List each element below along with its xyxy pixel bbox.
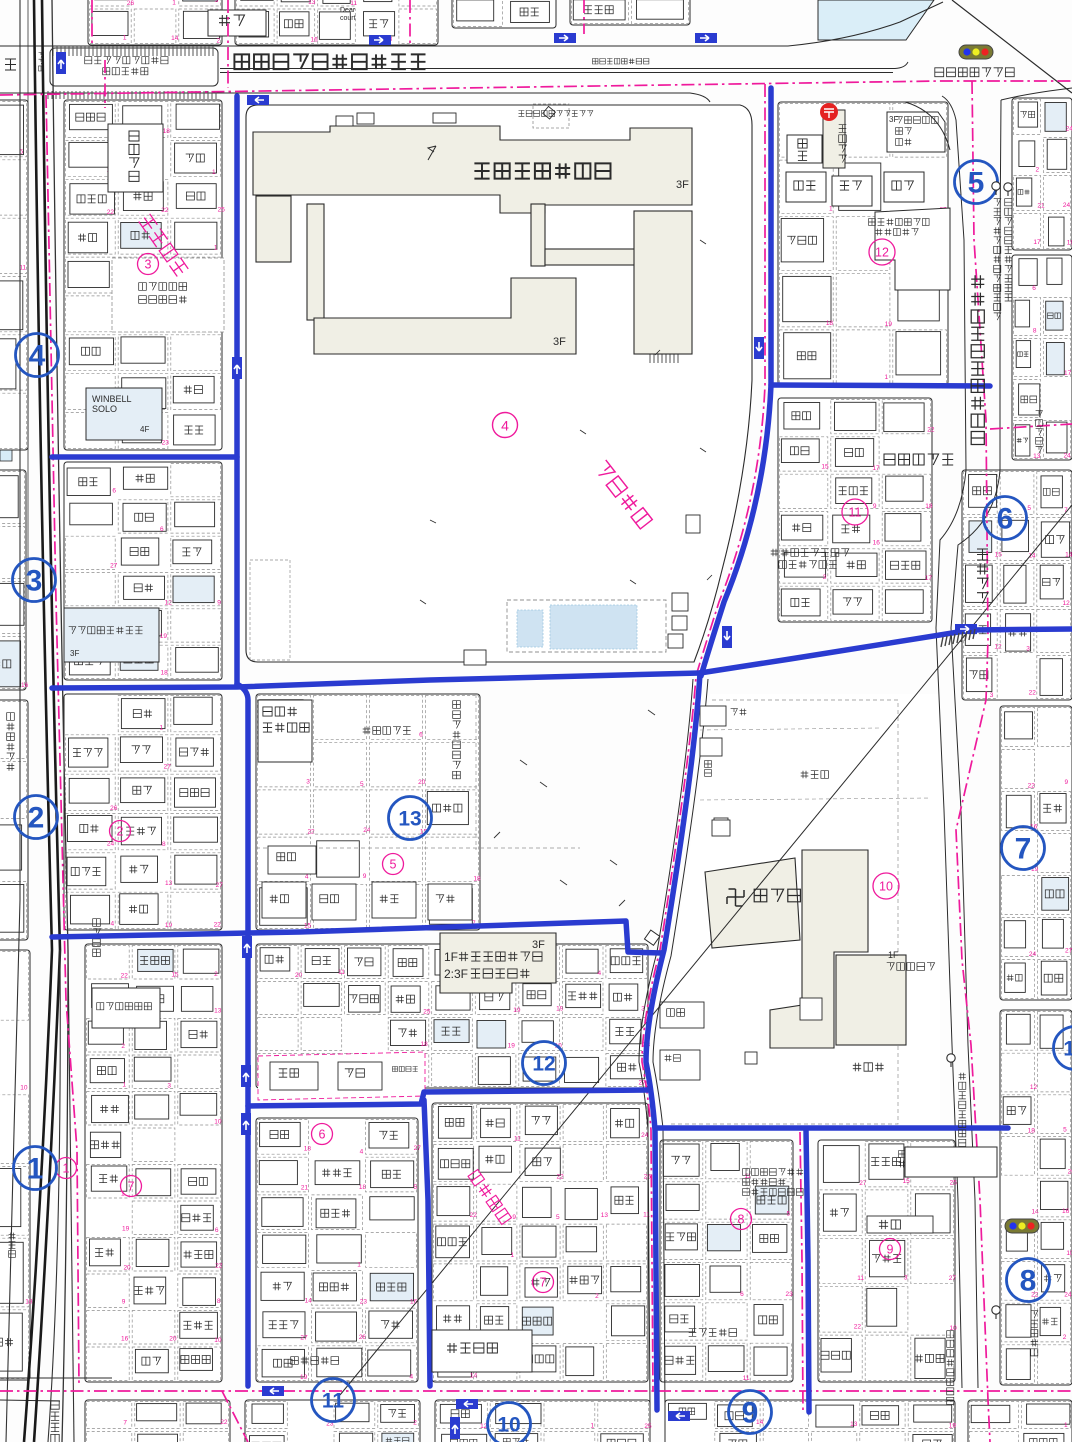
svg-text:19: 19 [160, 633, 168, 640]
svg-text:22: 22 [307, 829, 315, 836]
svg-text:3: 3 [990, 692, 994, 699]
svg-text:9: 9 [122, 1299, 126, 1306]
svg-text:3F: 3F [70, 649, 79, 658]
svg-text:2: 2 [1036, 166, 1040, 173]
svg-text:19: 19 [1067, 240, 1072, 247]
svg-text:13: 13 [850, 1421, 858, 1428]
svg-text:22: 22 [161, 207, 169, 214]
svg-text:2:3F: 2:3F [444, 967, 468, 981]
svg-text:13: 13 [1033, 453, 1041, 460]
svg-text:11: 11 [350, 0, 357, 7]
svg-text:6: 6 [319, 1128, 326, 1142]
svg-text:3: 3 [215, 0, 219, 4]
svg-text:26: 26 [1068, 1169, 1072, 1176]
svg-text:court: court [340, 15, 356, 22]
svg-text:22: 22 [927, 427, 935, 434]
svg-text:19: 19 [165, 922, 173, 929]
svg-text:7: 7 [128, 1180, 135, 1194]
svg-text:22: 22 [1028, 783, 1036, 790]
svg-text:18: 18 [473, 875, 481, 882]
svg-text:17: 17 [872, 465, 880, 472]
svg-text:23: 23 [162, 440, 170, 447]
svg-text:2: 2 [595, 1293, 599, 1300]
svg-text:12: 12 [532, 1053, 555, 1076]
svg-text:12: 12 [1063, 600, 1071, 607]
svg-text:1: 1 [172, 0, 176, 7]
svg-text:27: 27 [300, 1335, 308, 1342]
svg-text:15: 15 [903, 1178, 911, 1185]
svg-text:27: 27 [110, 562, 118, 569]
svg-text:2: 2 [117, 825, 124, 839]
svg-text:2: 2 [217, 38, 221, 45]
svg-text:27: 27 [216, 882, 224, 889]
svg-text:2: 2 [121, 1043, 125, 1050]
svg-text:24: 24 [1066, 125, 1072, 132]
svg-text:1: 1 [510, 1252, 514, 1259]
svg-text:3: 3 [1026, 645, 1030, 652]
svg-text:1: 1 [212, 169, 216, 176]
svg-text:7: 7 [123, 1420, 127, 1427]
svg-text:24: 24 [1064, 1291, 1072, 1298]
svg-text:24: 24 [1063, 202, 1071, 209]
svg-text:1: 1 [159, 724, 163, 731]
svg-text:WINBELL: WINBELL [92, 394, 132, 404]
svg-text:13: 13 [601, 1212, 609, 1219]
svg-text:10: 10 [497, 1414, 520, 1437]
svg-text:22: 22 [214, 921, 222, 928]
svg-text:25: 25 [644, 1423, 652, 1430]
svg-text:9: 9 [363, 873, 367, 880]
svg-text:16: 16 [21, 682, 29, 689]
svg-text:25: 25 [423, 1009, 431, 1016]
svg-text:10: 10 [214, 1337, 222, 1344]
svg-text:9: 9 [1064, 779, 1068, 786]
svg-text:14: 14 [171, 35, 179, 42]
svg-text:14: 14 [1065, 551, 1072, 558]
svg-text:23: 23 [360, 1298, 368, 1305]
svg-text:6: 6 [215, 1227, 219, 1234]
svg-text:2: 2 [28, 802, 45, 835]
svg-text:13: 13 [308, 0, 316, 6]
svg-text:20: 20 [123, 1265, 131, 1272]
svg-text:9: 9 [742, 1397, 759, 1430]
svg-text:1: 1 [122, 1081, 126, 1088]
svg-text:1: 1 [357, 1262, 361, 1269]
svg-text:9: 9 [217, 599, 221, 606]
svg-text:3F: 3F [553, 336, 566, 348]
svg-text:21: 21 [301, 1185, 309, 1192]
svg-text:6: 6 [419, 731, 423, 738]
svg-text:26: 26 [644, 1174, 652, 1181]
svg-text:26: 26 [127, 0, 135, 7]
svg-text:16: 16 [1062, 1208, 1070, 1215]
svg-text:27: 27 [859, 1180, 867, 1187]
svg-text:16: 16 [311, 36, 319, 43]
svg-text:12: 12 [875, 246, 889, 260]
svg-text:26: 26 [110, 805, 118, 812]
svg-text:27: 27 [949, 1275, 957, 1282]
svg-text:11: 11 [743, 1375, 750, 1382]
svg-text:8: 8 [1033, 328, 1037, 335]
svg-text:14: 14 [1063, 1038, 1072, 1061]
svg-text:11: 11 [857, 1275, 864, 1282]
svg-text:1F: 1F [888, 950, 899, 960]
svg-text:24: 24 [1029, 951, 1037, 958]
svg-text:18: 18 [1028, 1128, 1036, 1135]
svg-text:15: 15 [821, 464, 829, 471]
svg-text:20: 20 [295, 972, 303, 979]
svg-text:15: 15 [304, 923, 312, 930]
svg-text:18: 18 [163, 128, 171, 135]
svg-text:7: 7 [540, 1276, 547, 1290]
svg-text:19: 19 [513, 1007, 521, 1014]
svg-text:12: 12 [994, 644, 1002, 651]
svg-text:6: 6 [1032, 285, 1036, 292]
svg-text:4: 4 [360, 1148, 364, 1155]
svg-text:10: 10 [879, 880, 893, 894]
svg-text:5: 5 [787, 1210, 791, 1217]
svg-text:12: 12 [1030, 1084, 1038, 1091]
svg-text:5: 5 [1027, 505, 1031, 512]
svg-text:4: 4 [501, 418, 509, 434]
svg-text:9: 9 [512, 1214, 516, 1221]
svg-text:27: 27 [164, 763, 172, 770]
svg-text:18: 18 [304, 1145, 312, 1152]
svg-text:17: 17 [1064, 370, 1072, 377]
svg-text:5: 5 [390, 858, 397, 872]
svg-text:10: 10 [1066, 1250, 1072, 1257]
svg-text:5: 5 [413, 1184, 417, 1191]
svg-text:11: 11 [322, 1390, 345, 1413]
svg-text:5: 5 [968, 167, 985, 200]
svg-text:17: 17 [1033, 239, 1041, 246]
svg-text:1F: 1F [444, 950, 458, 964]
svg-text:8: 8 [217, 1298, 221, 1305]
svg-text:11: 11 [849, 506, 862, 520]
svg-text:8: 8 [738, 1213, 745, 1227]
svg-text:2: 2 [1063, 1334, 1067, 1341]
svg-text:21: 21 [1037, 202, 1045, 209]
svg-text:6: 6 [997, 503, 1014, 536]
svg-text:8: 8 [1020, 1265, 1037, 1298]
svg-text:9: 9 [873, 503, 877, 510]
svg-text:3: 3 [145, 258, 152, 272]
svg-text:3: 3 [26, 565, 43, 598]
svg-text:6: 6 [112, 487, 116, 494]
svg-text:5: 5 [1063, 1126, 1067, 1133]
svg-text:18: 18 [25, 1298, 33, 1305]
svg-text:4: 4 [29, 340, 46, 373]
svg-text:4: 4 [597, 970, 601, 977]
svg-text:17: 17 [925, 575, 933, 582]
svg-text:19: 19 [508, 1043, 516, 1050]
svg-text:18: 18 [925, 503, 933, 510]
svg-text:22: 22 [107, 209, 115, 216]
svg-text:8: 8 [162, 841, 166, 848]
svg-text:20: 20 [418, 779, 426, 786]
svg-text:3: 3 [306, 778, 310, 785]
svg-text:19: 19 [885, 321, 893, 328]
svg-text:1: 1 [214, 245, 218, 252]
svg-text:11: 11 [643, 1212, 650, 1219]
svg-text:13: 13 [214, 1007, 222, 1014]
svg-text:5: 5 [556, 1214, 560, 1221]
svg-text:20: 20 [169, 1336, 177, 1343]
svg-text:22: 22 [215, 1263, 223, 1270]
svg-text:4: 4 [110, 921, 114, 928]
svg-text:2: 2 [214, 971, 218, 978]
svg-text:1: 1 [1064, 1422, 1068, 1429]
svg-text:16: 16 [121, 1336, 129, 1343]
svg-text:16: 16 [873, 539, 881, 546]
svg-text:4F: 4F [140, 425, 149, 434]
svg-text:22: 22 [220, 1419, 228, 1426]
svg-text:2: 2 [413, 1420, 417, 1427]
svg-text:22: 22 [470, 1212, 478, 1219]
svg-text:4: 4 [410, 1374, 414, 1381]
svg-text:23: 23 [785, 1291, 793, 1298]
svg-text:SOLO: SOLO [92, 404, 117, 414]
svg-text:3F: 3F [532, 939, 545, 951]
svg-text:25: 25 [218, 206, 226, 213]
svg-text:19: 19 [300, 1374, 308, 1381]
svg-text:3F: 3F [676, 179, 689, 191]
svg-text:1: 1 [63, 1162, 70, 1176]
svg-text:14: 14 [1031, 1208, 1039, 1215]
svg-text:13: 13 [398, 808, 421, 831]
svg-text:15: 15 [995, 552, 1003, 559]
svg-text:18: 18 [826, 320, 834, 327]
svg-text:Dear: Dear [340, 7, 356, 14]
svg-text:1: 1 [27, 1153, 44, 1186]
svg-text:1: 1 [590, 1422, 594, 1429]
svg-text:9: 9 [887, 1243, 894, 1257]
svg-text:27: 27 [414, 1145, 422, 1152]
svg-text:3: 3 [904, 1274, 908, 1281]
svg-text:7: 7 [1015, 833, 1032, 866]
svg-text:5: 5 [360, 781, 364, 788]
svg-text:6: 6 [740, 1291, 744, 1298]
svg-text:24: 24 [1063, 452, 1071, 459]
svg-text:25: 25 [950, 1179, 958, 1186]
svg-text:1: 1 [885, 374, 889, 381]
svg-text:22: 22 [121, 973, 129, 980]
svg-text:27: 27 [1065, 948, 1072, 955]
svg-text:11: 11 [338, 969, 345, 976]
svg-text:3: 3 [823, 574, 827, 581]
svg-text:22: 22 [1029, 690, 1037, 697]
svg-text:18: 18 [420, 1041, 428, 1048]
svg-text:10: 10 [214, 1119, 222, 1126]
svg-text:13: 13 [165, 880, 173, 887]
svg-text:3: 3 [167, 1083, 171, 1090]
svg-text:24: 24 [107, 841, 115, 848]
svg-text:6: 6 [160, 526, 164, 533]
svg-text:19: 19 [122, 1226, 130, 1233]
svg-text:22: 22 [854, 1323, 862, 1330]
svg-text:10: 10 [20, 1085, 28, 1092]
svg-text:1: 1 [123, 35, 127, 42]
svg-text:18: 18 [161, 669, 169, 676]
svg-text:19: 19 [949, 1423, 957, 1430]
